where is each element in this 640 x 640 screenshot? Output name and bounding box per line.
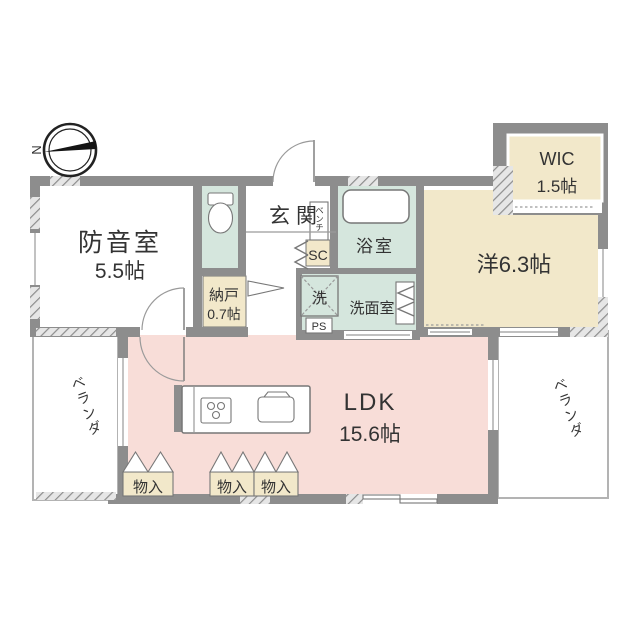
stove — [201, 398, 231, 423]
wall-hatch — [36, 328, 116, 336]
bath-label: 浴室 — [356, 237, 394, 256]
wall-hatch — [346, 494, 364, 504]
linen-closet-folding-door — [396, 282, 414, 324]
wic-label: WIC — [540, 149, 575, 169]
wall-hatch — [570, 327, 602, 337]
compass: N — [29, 124, 96, 176]
wall-hatch — [30, 197, 40, 229]
pipe-space-label: PS — [312, 321, 327, 333]
storage1-label: 物入 — [133, 479, 163, 496]
washer-label: 洗 — [312, 290, 327, 307]
ldk-size: 15.6帖 — [339, 423, 401, 446]
wall-hatch — [493, 166, 513, 215]
shoe-closet-label: SC — [308, 247, 327, 263]
window-western-veranda — [500, 328, 558, 336]
soundproof-room-size: 5.5帖 — [95, 260, 145, 283]
storage3-label: 物入 — [261, 479, 291, 496]
kitchen-counter — [182, 386, 310, 433]
wall-segment — [238, 186, 246, 274]
wall-segment — [296, 268, 420, 274]
window-ldk-bottom — [363, 494, 437, 504]
washroom-label: 洗面室 — [349, 300, 394, 317]
wall-segment — [197, 268, 246, 276]
wall-segment — [186, 327, 248, 337]
ldk-label: LDK — [344, 389, 397, 416]
bathtub — [343, 190, 409, 223]
wall-segment — [174, 385, 182, 432]
sink — [258, 392, 294, 422]
floor-plan: N 防音室 5.5帖 玄関 ベンチ SC 浴室 洗 洗面室 PS 納戸 0.7帖… — [0, 0, 640, 640]
veranda-right-area — [498, 331, 608, 498]
soundproof-room-label: 防音室 — [78, 229, 162, 257]
wall-segment — [193, 176, 202, 332]
wall-segment — [315, 176, 495, 186]
wall-hatch — [36, 492, 116, 500]
storage-room-label: 納戸 — [209, 287, 239, 304]
window-ldk-right — [488, 360, 498, 430]
floor-plan-svg: N 防音室 5.5帖 玄関 ベンチ SC 浴室 洗 洗面室 PS 納戸 0.7帖… — [0, 0, 640, 640]
wall-segment — [416, 182, 424, 337]
wall-segment — [330, 186, 338, 268]
wic-size: 1.5帖 — [537, 177, 578, 196]
sliding-door-washroom — [344, 331, 412, 339]
window-soundproof-left — [30, 233, 40, 285]
toilet-bowl — [209, 203, 233, 233]
compass-north-label: N — [29, 145, 44, 154]
window-western-right — [598, 249, 608, 297]
storage2-label: 物入 — [217, 479, 247, 496]
bench-label: ベンチ — [315, 206, 325, 232]
storage-room-door-arrow — [248, 281, 284, 296]
wall-hatch — [348, 176, 378, 186]
wall-hatch — [30, 287, 40, 319]
wall-hatch — [50, 176, 80, 186]
veranda-left-area — [33, 332, 118, 500]
western-room-label: 洋6.3帖 — [477, 252, 552, 277]
window-ldk-left — [118, 358, 128, 446]
storage-room-size: 0.7帖 — [207, 306, 240, 322]
entrance-door — [273, 140, 314, 182]
